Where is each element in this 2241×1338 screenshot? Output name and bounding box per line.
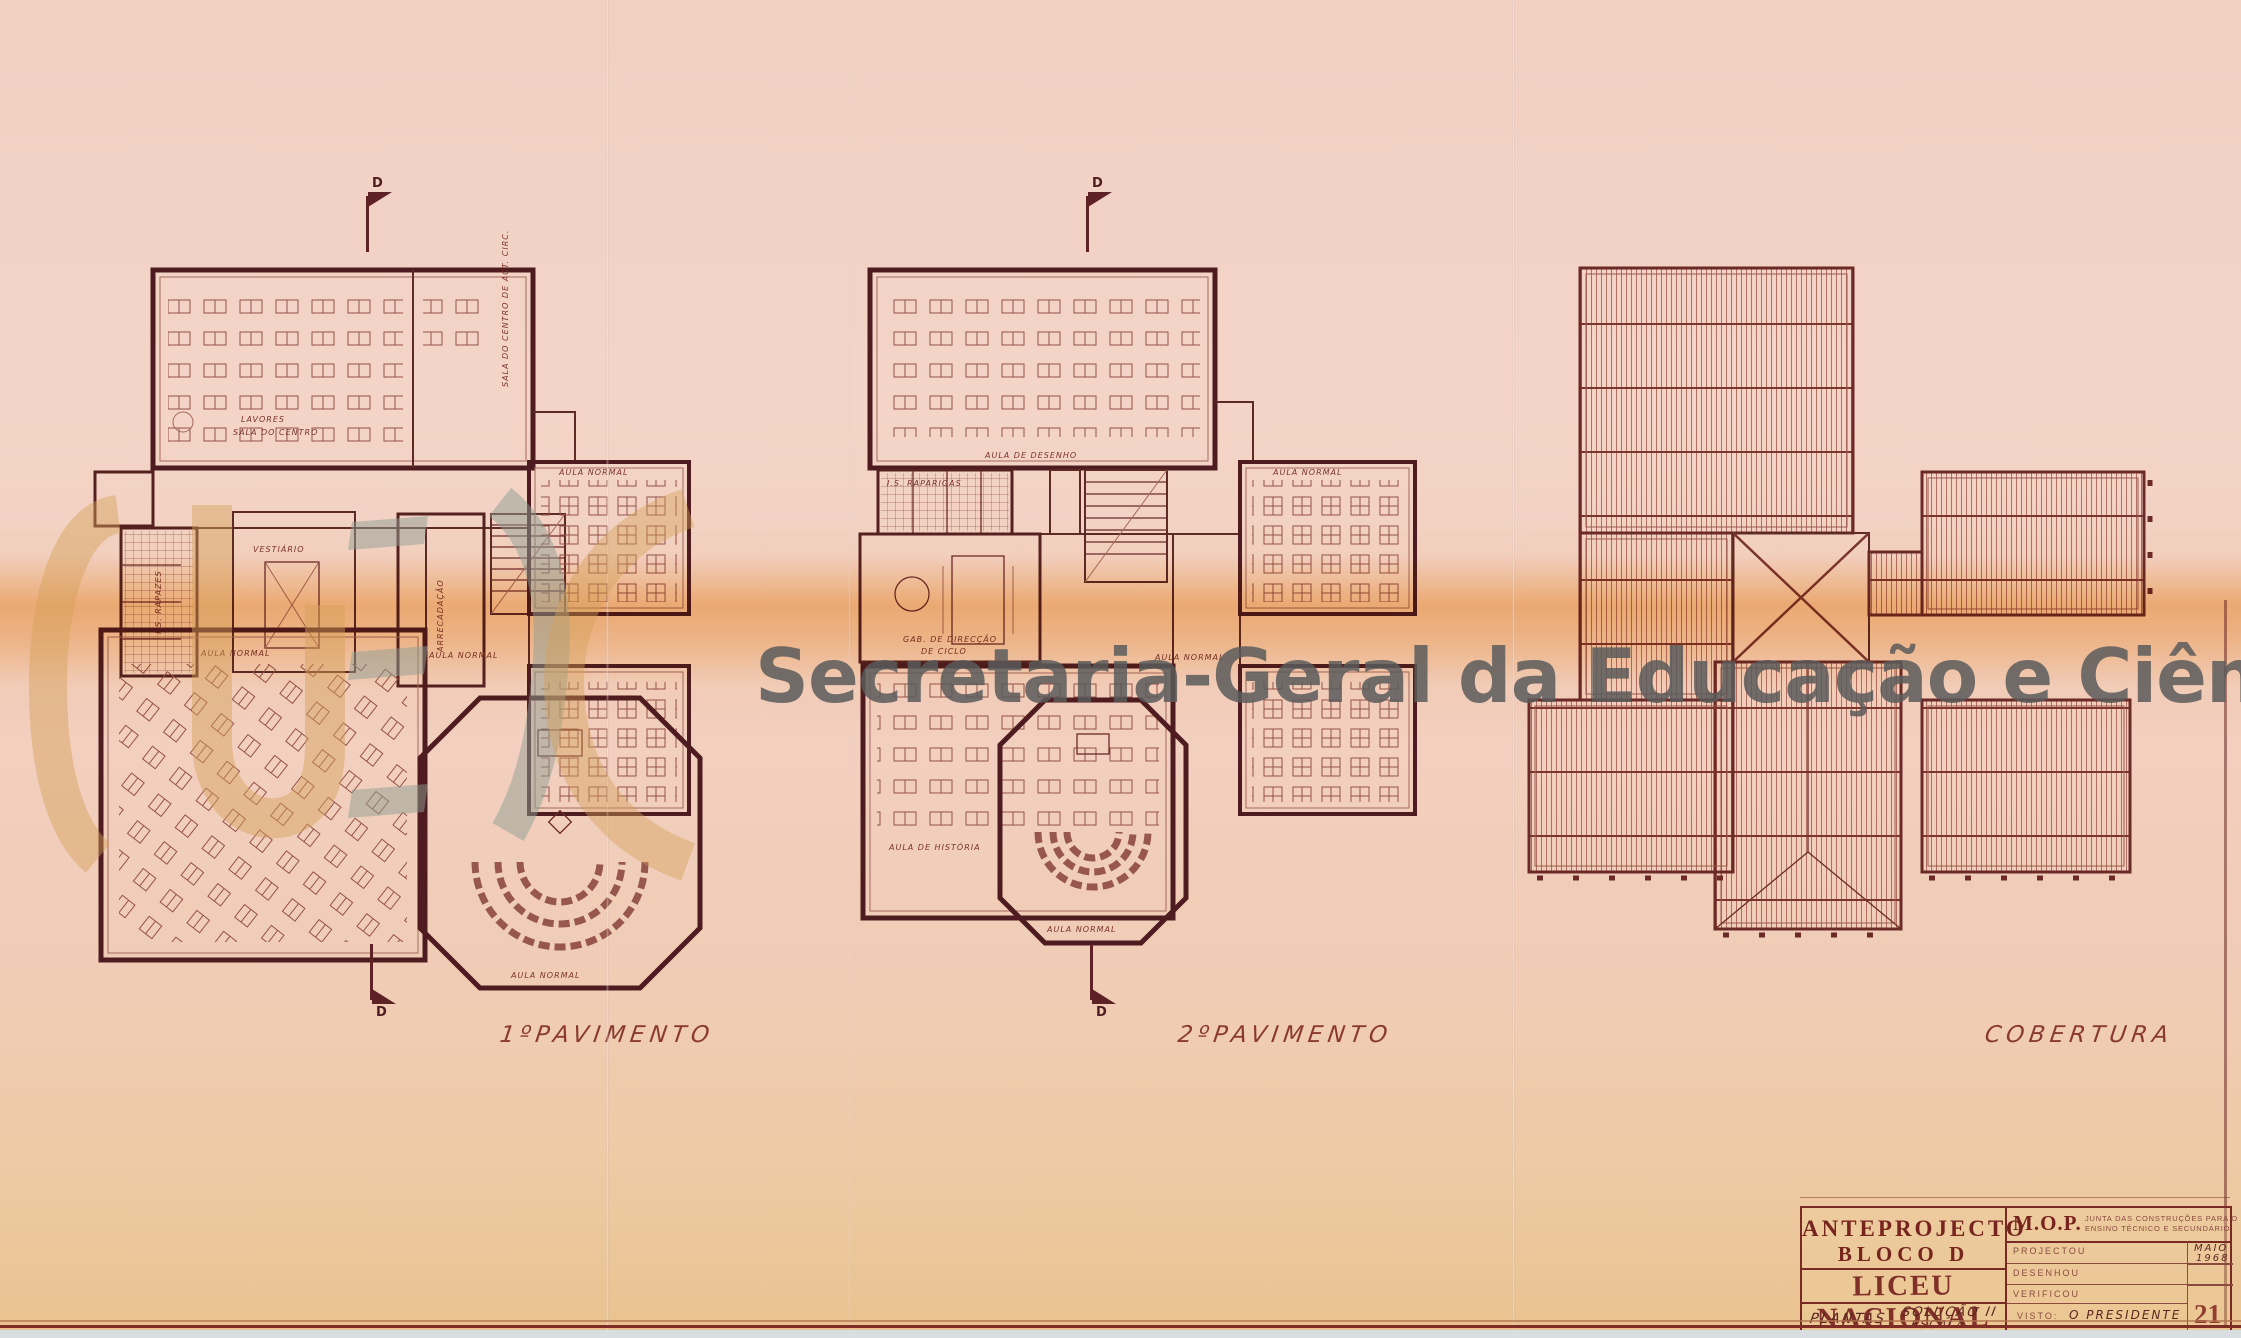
org-header: M.O.P. JUNTA DAS CONSTRUÇÕES PARA O ENSI… <box>2007 1208 2232 1243</box>
sheet-border-line <box>0 1325 2241 1328</box>
room-label: AULA DE HISTÓRIA <box>888 841 981 852</box>
project-title-line2: BLOCO D <box>1802 1242 2005 1267</box>
section-flag-icon <box>1092 989 1116 1004</box>
section-marker: D <box>1090 944 1093 1000</box>
room-label: AULA NORMAL <box>1046 925 1116 934</box>
room-label: AULA NORMAL <box>428 651 498 660</box>
room-label: AULA DE DESENHO <box>984 451 1077 460</box>
section-flag-icon <box>1088 192 1112 207</box>
room-label: LAVORES <box>241 415 285 424</box>
plan-caption-roof: COBERTURA <box>1983 1022 2175 1048</box>
section-marker: D <box>366 196 369 252</box>
row-desenhou: DESENHOU <box>2007 1263 2187 1285</box>
room-label: ARRECADAÇÃO <box>435 579 445 653</box>
section-letter: D <box>376 1005 387 1020</box>
room-label: AULA NORMAL <box>510 971 580 980</box>
room-label: AULA NORMAL <box>558 468 628 477</box>
title-block-right: M.O.P. JUNTA DAS CONSTRUÇÕES PARA O ENSI… <box>2005 1208 2232 1330</box>
room-label: SALA DO CENTRO <box>233 428 318 437</box>
project-title: ANTEPROJECTO BLOCO D <box>1802 1208 2005 1270</box>
row-verificou-label: VERIFICOU <box>2013 1289 2080 1299</box>
section-flag-icon <box>368 192 392 207</box>
org-abbr: M.O.P. <box>2013 1211 2082 1236</box>
sheet-border-line <box>0 1320 2241 1322</box>
section-flag-icon <box>372 989 396 1004</box>
room-label: AULA NORMAL <box>1272 468 1342 477</box>
plan-caption-first-floor: 1ºPAVIMENTO <box>498 1022 716 1048</box>
row-verificou: VERIFICOU <box>2007 1284 2187 1304</box>
title-block-left: ANTEPROJECTO BLOCO D LICEU NACIONAL PLAN… <box>1802 1208 2005 1330</box>
floor-plan-first-floor: LAVORES SALA DO CENTRO SALA DO CENTRO DE… <box>93 262 713 1007</box>
section-letter: D <box>1096 1005 1107 1020</box>
cell-divider <box>2188 1263 2233 1265</box>
scanner-background-strip <box>0 1330 2241 1338</box>
room-label: I.S. RAPAZES <box>154 570 163 634</box>
org-name-line2: ENSINO TÉCNICO E SECUNDÁRIO <box>2085 1224 2230 1233</box>
row-projectou-label: PROJECTOU <box>2013 1246 2086 1256</box>
section-marker: D <box>1086 196 1089 252</box>
section-letter: D <box>372 176 383 191</box>
section-marker: D <box>370 944 373 1000</box>
room-label: I.S. RAPARIGAS <box>887 479 962 488</box>
project-title-line1: ANTEPROJECTO <box>1802 1216 2005 1242</box>
plan-caption-second-floor: 2ºPAVIMENTO <box>1176 1022 1394 1048</box>
cell-divider <box>2188 1284 2233 1286</box>
school-stamp: LICEU NACIONAL <box>1802 1270 2005 1304</box>
org-name: JUNTA DAS CONSTRUÇÕES PARA O ENSINO TÉCN… <box>2085 1214 2238 1234</box>
title-block-top-rule <box>1800 1197 2230 1198</box>
room-label: VESTIÁRIO <box>253 543 305 554</box>
date-sheet-column: MAIO 1968 21 <box>2187 1241 2233 1330</box>
archive-watermark-text: Secretaria-Geral da Educação e Ciência <box>755 632 2241 720</box>
org-name-line1: JUNTA DAS CONSTRUÇÕES PARA O <box>2085 1214 2238 1223</box>
room-label: AULA NORMAL <box>200 649 270 658</box>
blueprint-sheet: LAVORES SALA DO CENTRO SALA DO CENTRO DE… <box>0 0 2241 1338</box>
room-label: SALA DO CENTRO DE ACT. CIRC. <box>501 230 510 387</box>
row-desenhou-label: DESENHOU <box>2013 1268 2080 1278</box>
section-letter: D <box>1092 176 1103 191</box>
row-projectou: PROJECTOU <box>2007 1241 2187 1264</box>
title-block: ANTEPROJECTO BLOCO D LICEU NACIONAL PLAN… <box>1800 1206 2232 1332</box>
roof-plan <box>1529 262 2189 962</box>
